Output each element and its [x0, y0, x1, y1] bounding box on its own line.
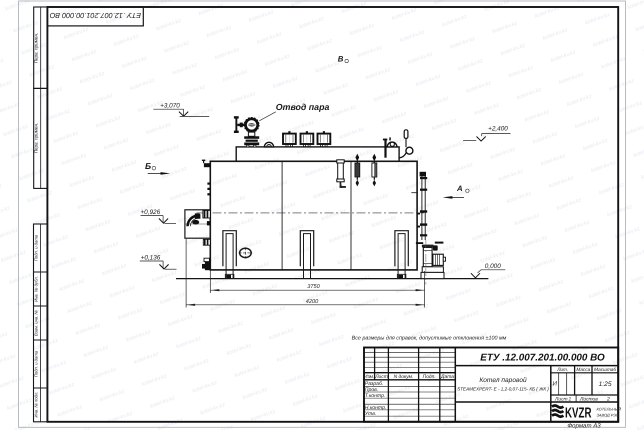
svg-text:Утв.: Утв.: [365, 411, 377, 417]
svg-text:Инв. № дубл.: Инв. № дубл.: [33, 276, 38, 302]
svg-text:Дата: Дата: [440, 374, 454, 380]
svg-text:N докум.: N докум.: [394, 374, 414, 380]
svg-text:2: 2: [606, 397, 610, 403]
svg-text:Подп. и дата: Подп. и дата: [33, 234, 38, 261]
svg-text:ЗАВОД РЭП: ЗАВОД РЭП: [597, 413, 620, 418]
svg-text:Б: Б: [145, 161, 151, 171]
svg-text:Масса: Масса: [576, 367, 590, 372]
svg-text:3750: 3750: [307, 284, 320, 290]
svg-text:4200: 4200: [306, 299, 319, 305]
svg-text:+0,136: +0,136: [141, 254, 161, 261]
svg-text:Все размеры для справок, допус: Все размеры для справок, допустимые откл…: [352, 335, 507, 341]
svg-text:Лист: Лист: [554, 397, 568, 403]
svg-text:Масштаб: Масштаб: [594, 367, 616, 372]
svg-text:Перв. примен.: Перв. примен.: [34, 123, 39, 154]
svg-text:STEAMEXPERT- Е - 1,2-0,07-115-: STEAMEXPERT- Е - 1,2-0,07-115- КБ ( ЖК ): [457, 386, 549, 391]
svg-text:Лит.: Лит.: [556, 367, 568, 372]
svg-text:КОТЕЛЬНЫЙ: КОТЕЛЬНЫЙ: [597, 407, 622, 412]
svg-text:KVZR: KVZR: [565, 405, 592, 421]
svg-text:Подп.: Подп.: [423, 374, 436, 380]
svg-text:Изм.: Изм.: [364, 374, 374, 380]
svg-text:Взам. инв. №: Взам. инв. №: [33, 310, 38, 336]
svg-text:А: А: [456, 184, 463, 193]
svg-text:1: 1: [569, 397, 572, 403]
svg-text:Подп. и дата: Подп. и дата: [33, 350, 38, 377]
svg-text:Котел паровой: Котел паровой: [479, 377, 527, 384]
svg-text:Перв. примен.: Перв. примен.: [34, 33, 39, 64]
svg-text:Лист: Лист: [374, 374, 388, 380]
svg-text:1:25: 1:25: [599, 381, 612, 388]
svg-text:+3,070: +3,070: [160, 102, 180, 109]
svg-text:Отвод пара: Отвод пара: [276, 102, 330, 112]
svg-text:Формат А3: Формат А3: [567, 423, 601, 430]
svg-text:И: И: [552, 381, 557, 388]
svg-text:Листов: Листов: [579, 397, 598, 403]
svg-text:0,000: 0,000: [485, 263, 501, 270]
svg-text:+2,400: +2,400: [488, 126, 508, 133]
svg-text:+0,926: +0,926: [140, 209, 160, 216]
svg-text:ЕТУ .12.007.201.00.000 ВО: ЕТУ .12.007.201.00.000 ВО: [49, 11, 141, 20]
svg-text:В: В: [338, 54, 344, 63]
svg-text:Пров.: Пров.: [365, 387, 378, 393]
svg-text:ЕТУ .12.007.201.00.000 ВО: ЕТУ .12.007.201.00.000 ВО: [480, 352, 605, 363]
svg-text:Инв. № подл.: Инв. № подл.: [33, 392, 38, 418]
svg-text:Т.контр.: Т.контр.: [365, 393, 386, 399]
